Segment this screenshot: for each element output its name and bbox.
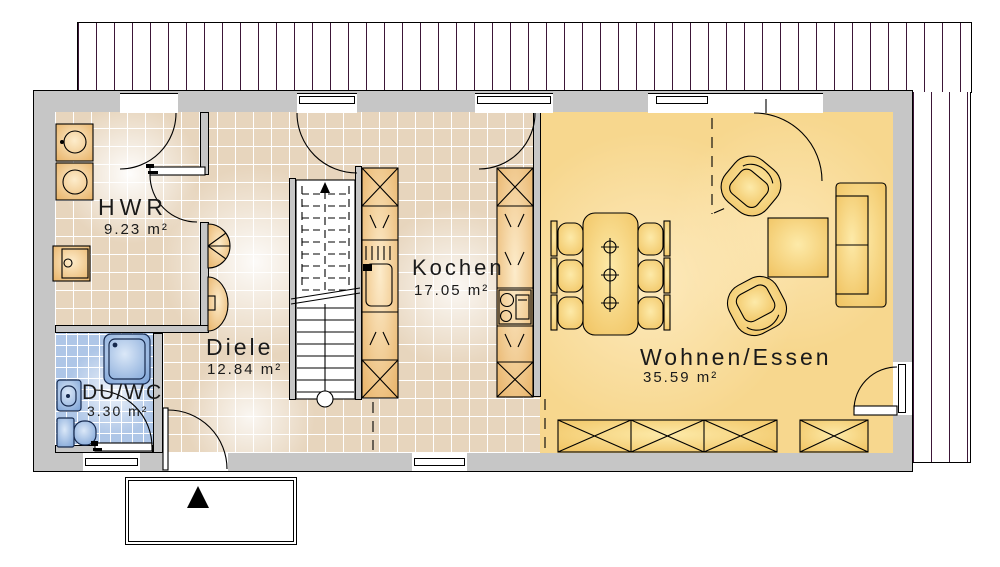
wall-kitchen-living xyxy=(533,112,541,397)
room-area-kochen: 17.05 m² xyxy=(414,282,489,299)
room-area-duwc: 3.30 m² xyxy=(87,403,148,419)
porch-step xyxy=(128,480,294,542)
door-opening-hwr-north xyxy=(120,93,178,113)
roof-overhang-hatch-right xyxy=(913,92,971,463)
room-label-diele: Diele xyxy=(206,334,273,361)
room-label-kochen: Kochen xyxy=(412,255,505,281)
entrance-door-opening xyxy=(163,453,228,472)
wall-stair-left xyxy=(289,178,296,400)
room-area-hwr: 9.23 m² xyxy=(104,221,169,238)
wall-stair-right xyxy=(355,166,362,400)
window-kitchen xyxy=(475,93,553,113)
door-opening-east xyxy=(893,362,913,415)
floor-living-room xyxy=(540,112,893,453)
floor-plan: HWR 9.23 m² DU/WC 3.30 m² Diele 12.84 m²… xyxy=(0,0,1000,567)
room-area-diele: 12.84 m² xyxy=(207,361,282,378)
terrace-door-opening xyxy=(648,93,823,113)
entrance-porch xyxy=(125,477,297,545)
window-stair xyxy=(297,93,357,113)
roof-overhang-hatch-top xyxy=(77,22,972,93)
room-area-wohnen: 35.59 m² xyxy=(643,369,718,386)
wall-duwc-bottom xyxy=(55,445,153,453)
wall-hwr-duwc xyxy=(55,325,209,333)
window-duwc xyxy=(83,453,140,472)
room-label-duwc: DU/WC xyxy=(82,381,163,405)
window-diele-south xyxy=(412,453,467,472)
room-label-wohnen: Wohnen/Essen xyxy=(640,344,832,371)
wall-hwr-upper xyxy=(200,112,209,175)
wall-hwr-lower xyxy=(200,222,209,333)
room-label-hwr: HWR xyxy=(98,194,168,221)
